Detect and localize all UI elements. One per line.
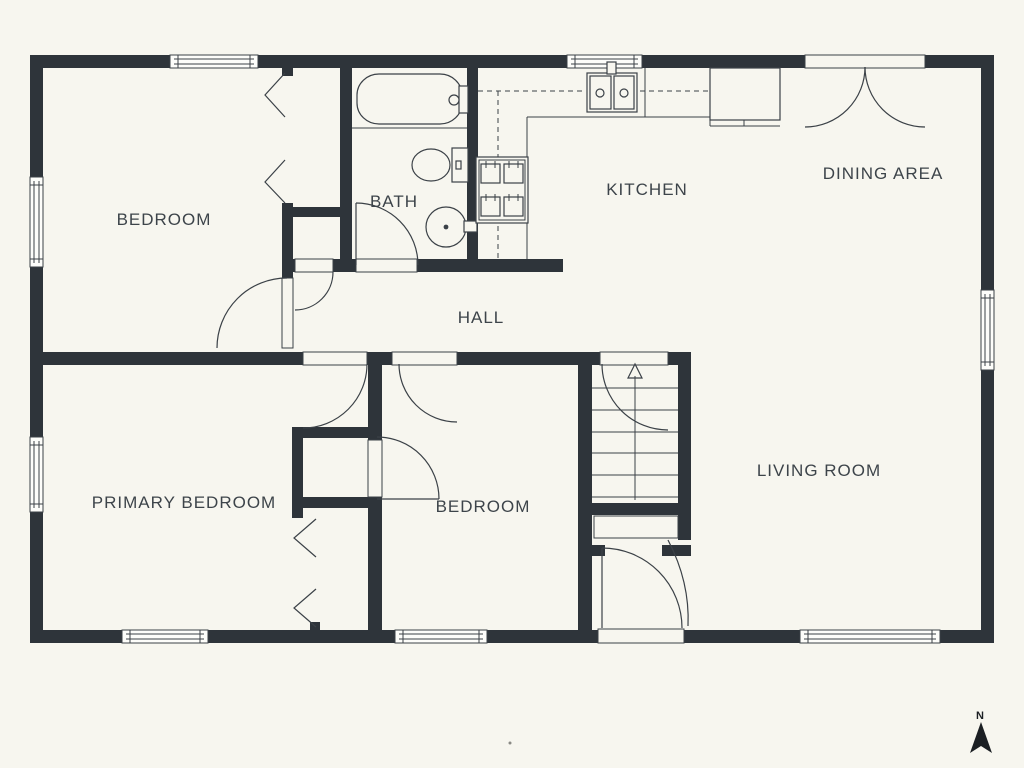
kitchen-fixtures	[476, 62, 780, 261]
door-swings	[217, 67, 925, 628]
window-living-bottom	[800, 630, 940, 643]
bath-door-arc	[356, 203, 418, 265]
stairs-door-opening	[600, 352, 668, 365]
bathtub-icon	[352, 74, 468, 128]
bedroom1-closet-bifold-2	[265, 160, 285, 203]
hall-closet-door-arc	[295, 272, 333, 310]
walls	[30, 55, 994, 643]
stray-dot	[509, 742, 512, 745]
primary-closet-bifold-1	[294, 519, 316, 557]
label-dining: DINING AREA	[823, 164, 944, 183]
closet-bifold-doors	[265, 73, 316, 627]
hall-closet-door-opening	[295, 259, 333, 272]
understair-closet	[594, 516, 678, 538]
label-kitchen: KITCHEN	[606, 180, 688, 199]
bedroom2-closet-door-opening	[368, 440, 382, 497]
stairs-up-arrow-icon	[628, 364, 642, 378]
primary-door-opening	[303, 352, 367, 365]
front-door-opening	[598, 629, 684, 643]
label-primary: PRIMARY BEDROOM	[92, 493, 276, 512]
bedroom2-closet-door-arc	[377, 437, 439, 499]
bedroom2-door-arc	[399, 364, 457, 422]
label-bedroom1: BEDROOM	[117, 210, 212, 229]
label-living: LIVING ROOM	[757, 461, 881, 480]
window-dining-right	[981, 290, 994, 370]
label-bath: BATH	[370, 192, 418, 211]
refrigerator-icon	[710, 68, 780, 126]
range-icon	[476, 157, 528, 223]
bedroom2-door-opening	[392, 352, 457, 365]
window-bedroom2-bottom	[395, 630, 487, 643]
primary-closet-bifold-2	[294, 589, 316, 627]
floor-plan: N BEDROOM BATH KITCHEN DINING AREA HALL …	[0, 0, 1024, 768]
window-kitchen-top	[567, 55, 642, 68]
bath-fixtures	[352, 74, 477, 247]
dining-doors-opening	[805, 55, 925, 68]
bedroom1-door-opening	[282, 278, 293, 348]
kitchen-sink-icon	[587, 62, 637, 112]
window-primary-bottom	[122, 630, 208, 643]
bedroom1-door-arc	[217, 278, 287, 348]
dining-door-right-arc	[865, 67, 925, 127]
window-bedroom1-left	[30, 177, 43, 267]
floor-plan-canvas: N BEDROOM BATH KITCHEN DINING AREA HALL …	[0, 0, 1024, 768]
toilet-icon	[412, 148, 468, 182]
compass-label: N	[976, 710, 984, 722]
label-hall: HALL	[458, 308, 505, 327]
north-arrow-icon	[970, 722, 992, 753]
dining-door-left-arc	[805, 67, 865, 127]
bedroom1-closet-bifold-1	[265, 73, 285, 117]
windows	[30, 55, 994, 643]
front-door-arc	[602, 548, 682, 628]
window-bedroom1-top	[170, 55, 258, 68]
window-primary-left	[30, 437, 43, 512]
primary-door-arc	[303, 364, 367, 428]
bath-door-opening	[356, 259, 417, 272]
label-bedroom2: BEDROOM	[436, 497, 531, 516]
compass: N	[970, 710, 992, 753]
